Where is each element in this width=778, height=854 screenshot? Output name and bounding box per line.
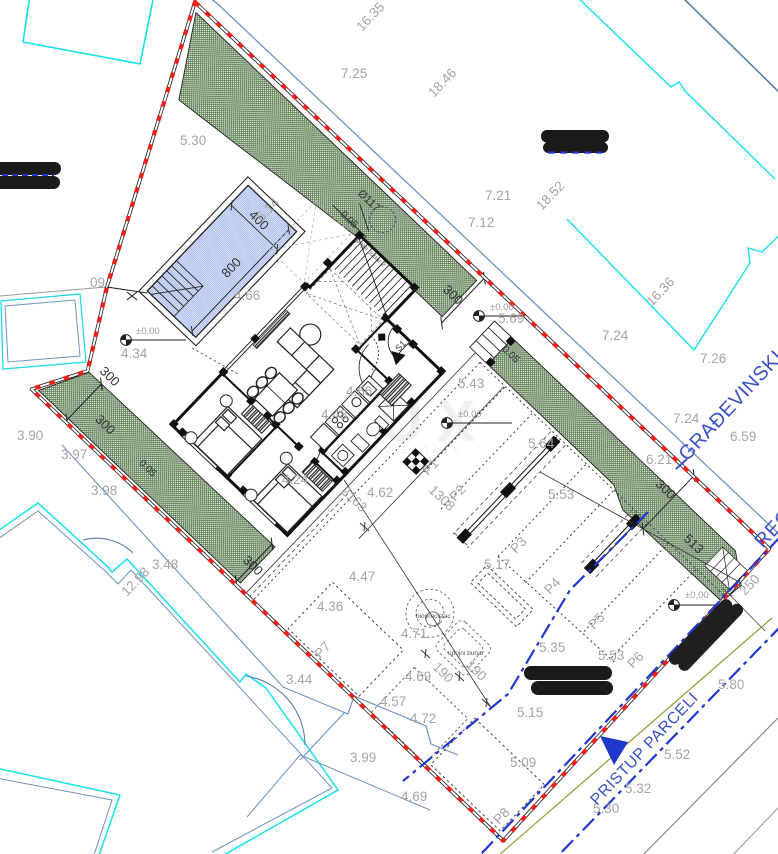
svg-text:5.80: 5.80 (718, 677, 744, 692)
svg-text:7.26: 7.26 (700, 351, 726, 366)
svg-text:5.09: 5.09 (510, 755, 536, 770)
svg-text:5.53: 5.53 (598, 648, 624, 663)
svg-text:±0,00: ±0,00 (136, 326, 160, 337)
svg-text:4.71: 4.71 (401, 626, 427, 641)
svg-text:5.52: 5.52 (664, 747, 690, 762)
svg-text:upojni bunar: upojni bunar (448, 650, 485, 657)
svg-text:4.72: 4.72 (410, 711, 436, 726)
svg-text:6.21: 6.21 (646, 452, 672, 467)
svg-text:±0,00: ±0,00 (685, 590, 709, 601)
svg-text:7.12: 7.12 (468, 215, 494, 230)
svg-text:09: 09 (90, 275, 105, 290)
svg-text:7.24: 7.24 (673, 411, 700, 426)
svg-text:4.34: 4.34 (121, 346, 148, 361)
svg-text:5.30: 5.30 (180, 133, 206, 148)
svg-text:5.15: 5.15 (517, 705, 543, 720)
svg-text:4.62: 4.62 (367, 485, 393, 500)
svg-text:5.35: 5.35 (539, 640, 565, 655)
svg-text:4.66: 4.66 (234, 288, 260, 303)
svg-text:3.44: 3.44 (286, 672, 313, 687)
svg-text:3.99: 3.99 (350, 750, 376, 765)
svg-text:5.69: 5.69 (498, 311, 524, 326)
svg-text:5.17: 5.17 (484, 557, 510, 572)
svg-text:5.43: 5.43 (458, 376, 484, 391)
svg-text:3.98: 3.98 (91, 483, 117, 498)
svg-text:4.47: 4.47 (349, 569, 375, 584)
svg-text:bioprocistac: bioprocistac (416, 613, 451, 620)
svg-text:7.21: 7.21 (485, 188, 511, 203)
svg-text:6.59: 6.59 (730, 429, 756, 444)
svg-text:4.36: 4.36 (317, 599, 343, 614)
svg-text:3.90: 3.90 (17, 428, 43, 443)
svg-text:5.64: 5.64 (528, 436, 555, 451)
svg-text:±0,00: ±0,00 (458, 409, 482, 420)
svg-text:7.25: 7.25 (341, 66, 367, 81)
svg-text:4.24: 4.24 (282, 472, 309, 487)
svg-text:3.48: 3.48 (152, 557, 178, 572)
svg-text:5.53: 5.53 (548, 487, 574, 502)
svg-text:7.24: 7.24 (602, 328, 629, 343)
svg-text:4.69: 4.69 (401, 789, 427, 804)
svg-text:3.97: 3.97 (61, 447, 87, 462)
svg-text:4.66: 4.66 (346, 384, 372, 399)
svg-text:4.48: 4.48 (321, 407, 347, 422)
svg-text:5.32: 5.32 (625, 781, 651, 796)
svg-text:4.69: 4.69 (405, 669, 431, 684)
svg-text:4.57: 4.57 (380, 694, 406, 709)
